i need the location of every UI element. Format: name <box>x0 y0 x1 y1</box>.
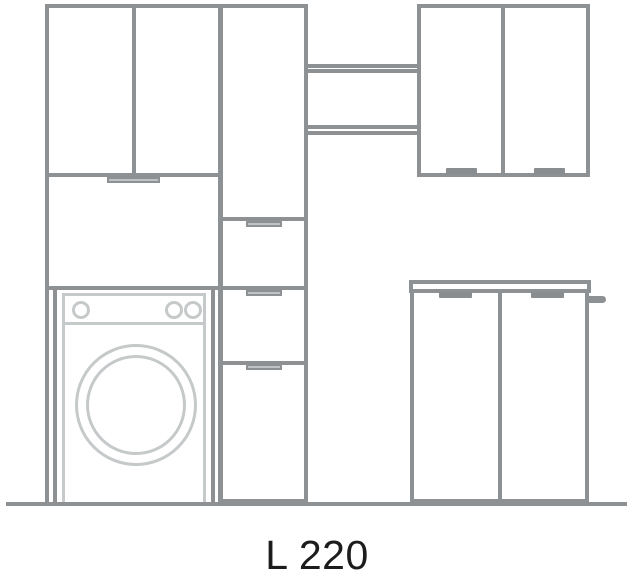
bridge-shelf-upper[interactable] <box>306 64 418 73</box>
left-wall-cabinet-door-divider <box>132 8 136 173</box>
washing-machine-door-inner <box>86 355 186 455</box>
base-cabinet-side-bar <box>589 296 606 303</box>
niche-right-inner-panel <box>211 290 215 503</box>
bridge-shelf-lower[interactable] <box>306 125 418 135</box>
right-wall-cabinet-handle-right <box>534 168 565 174</box>
base-cabinet-handle-left <box>439 292 472 298</box>
tall-column-handle-3 <box>246 364 282 370</box>
washing-machine-knob-right-1 <box>165 301 183 319</box>
tall-column-cabinet[interactable] <box>218 4 308 503</box>
floor-line <box>6 502 627 506</box>
right-wall-cabinet-door-divider <box>501 8 505 173</box>
washing-machine-knob-right-2 <box>184 301 202 319</box>
tall-column-handle-1 <box>246 221 282 227</box>
niche-left-inner-panel <box>53 290 57 503</box>
left-open-compartment[interactable] <box>45 173 223 290</box>
base-cabinet-door-divider <box>498 293 502 499</box>
niche-left-side-panel <box>45 290 49 503</box>
base-cabinet-handle-right <box>531 292 564 298</box>
dimension-label: L 220 <box>0 534 634 577</box>
base-cabinet-countertop[interactable] <box>409 280 591 293</box>
washing-machine-panel-line <box>65 322 203 325</box>
elevation-drawing: L 220 <box>0 0 634 579</box>
tall-column-handle-2 <box>246 290 282 296</box>
washing-machine-knob-left <box>72 301 90 319</box>
right-wall-cabinet-handle-left <box>446 168 477 174</box>
